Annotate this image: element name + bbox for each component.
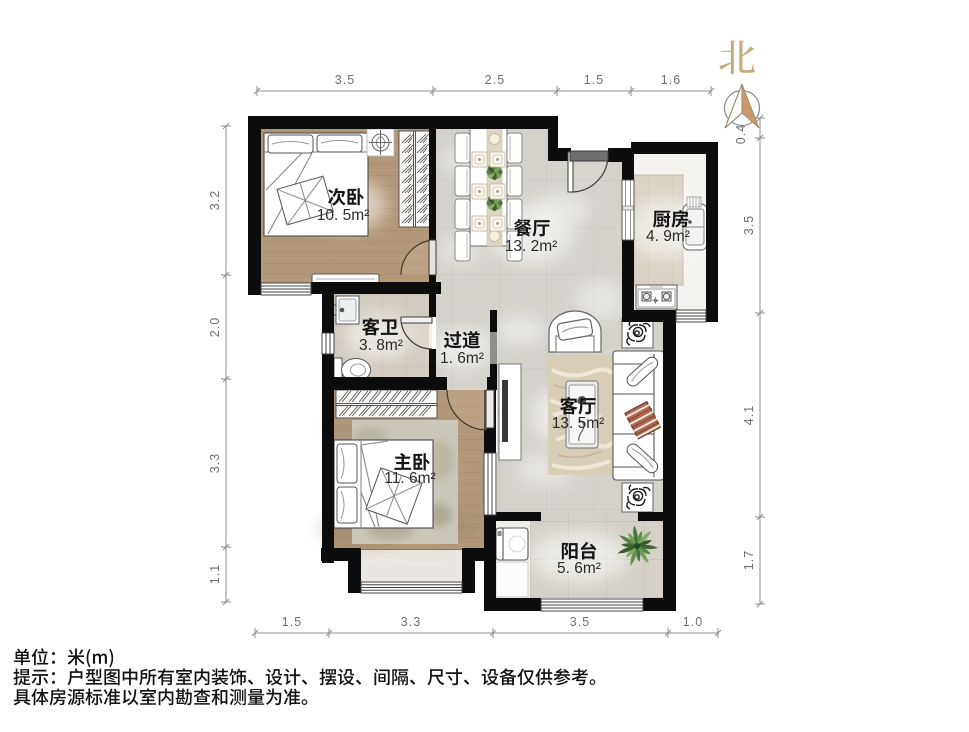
svg-text:2.5: 2.5 [485, 73, 505, 87]
svg-text:3.5: 3.5 [742, 215, 756, 235]
svg-text:10. 5m²: 10. 5m² [317, 207, 370, 224]
svg-text:0.4: 0.4 [734, 124, 748, 144]
svg-text:1. 6m²: 1. 6m² [440, 350, 484, 367]
svg-text:1.5: 1.5 [282, 615, 302, 629]
svg-text:1.0: 1.0 [683, 615, 703, 629]
svg-text:3.3: 3.3 [401, 615, 421, 629]
svg-text:3.3: 3.3 [208, 453, 222, 473]
svg-text:3.5: 3.5 [335, 73, 355, 87]
svg-text:11. 6m²: 11. 6m² [384, 470, 435, 487]
svg-text:4. 9m²: 4. 9m² [646, 228, 690, 245]
svg-text:1.1: 1.1 [208, 564, 222, 584]
svg-text:2.0: 2.0 [208, 317, 222, 337]
svg-text:3. 8m²: 3. 8m² [359, 337, 403, 354]
svg-text:1.7: 1.7 [742, 550, 756, 570]
svg-text:1.5: 1.5 [584, 73, 604, 87]
svg-text:13. 2m²: 13. 2m² [505, 238, 558, 255]
svg-text:3.5: 3.5 [570, 615, 590, 629]
svg-text:4.1: 4.1 [742, 405, 756, 425]
svg-text:13. 5m²: 13. 5m² [552, 415, 605, 432]
svg-text:1.6: 1.6 [661, 73, 681, 87]
svg-text:5. 6m²: 5. 6m² [557, 560, 601, 577]
svg-text:3.2: 3.2 [208, 190, 222, 210]
